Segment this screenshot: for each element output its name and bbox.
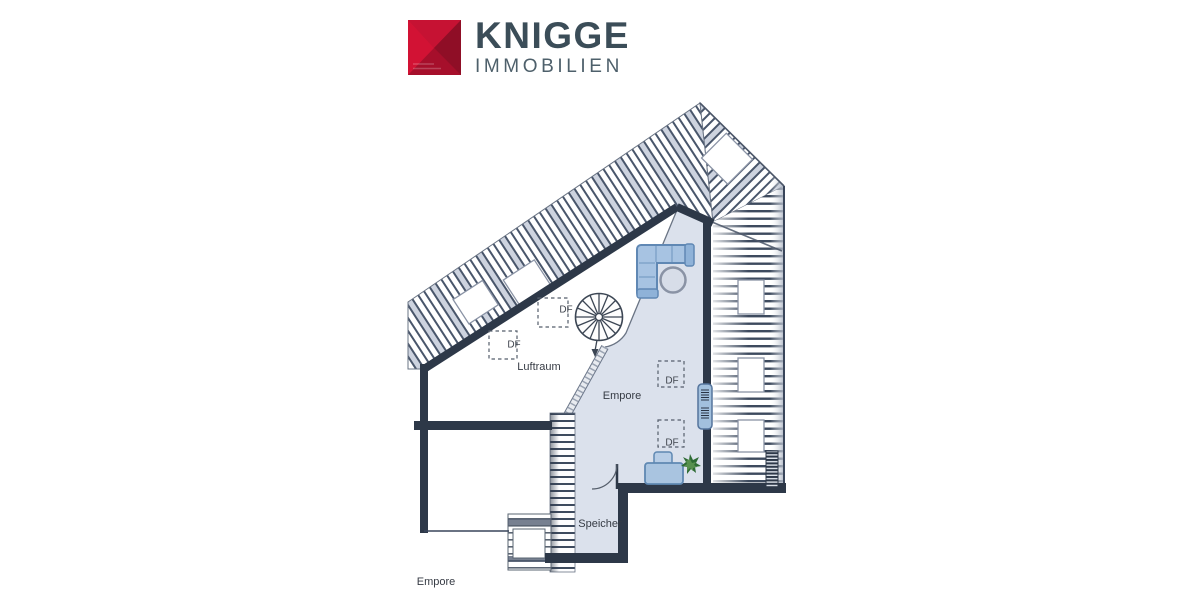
wall-bottom (618, 483, 786, 493)
roof-fascia (770, 172, 784, 483)
coffee-table-icon (661, 268, 686, 293)
wall-left (420, 364, 428, 533)
room-label-empore: Empore (603, 390, 642, 402)
desk-icon (645, 463, 683, 484)
straight-staircase (508, 514, 551, 570)
skylight (738, 420, 764, 452)
roof-window-label: DF (665, 376, 678, 387)
floor-plan-page: KNIGGE IMMOBILIEN (0, 0, 1200, 600)
sofa-armrest (637, 289, 658, 298)
wall-mid (414, 421, 552, 430)
room-label-speicher: Speicher (578, 518, 621, 530)
floor-title-label: Empore (417, 576, 456, 588)
roof-window-label: DF (559, 305, 572, 316)
skylight (738, 280, 764, 314)
roof-window-label: DF (665, 438, 678, 449)
roof-window-label: DF (507, 340, 520, 351)
radiator-icon (698, 384, 712, 429)
room-label-luftraum: Luftraum (517, 361, 560, 373)
floor-plan-drawing (0, 0, 1200, 600)
knee-wall-hatch (550, 413, 575, 572)
skylight (738, 358, 764, 392)
chimney (766, 451, 778, 488)
wall-speicher-bottom (545, 553, 628, 563)
sofa-armrest (685, 244, 694, 266)
wall-right (703, 219, 711, 491)
